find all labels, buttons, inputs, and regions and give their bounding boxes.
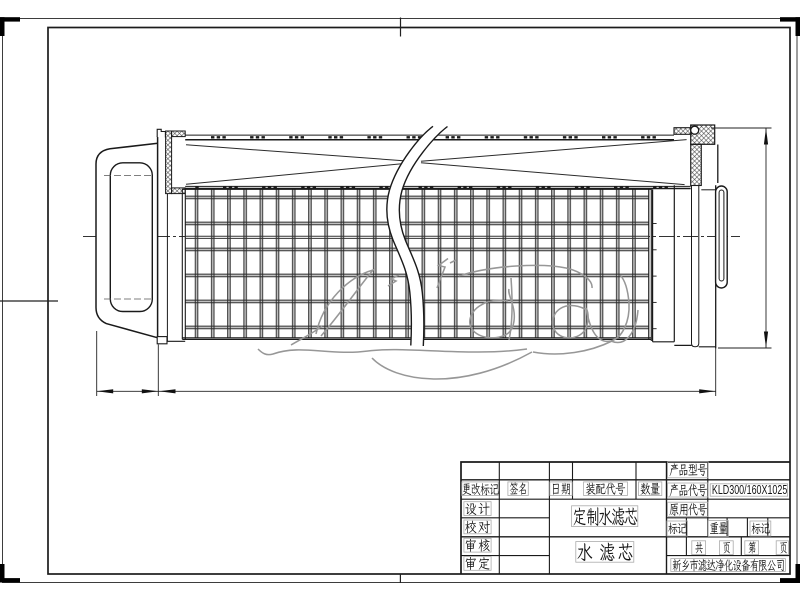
svg-text:KLD300/160X1025: KLD300/160X1025 (712, 482, 787, 497)
